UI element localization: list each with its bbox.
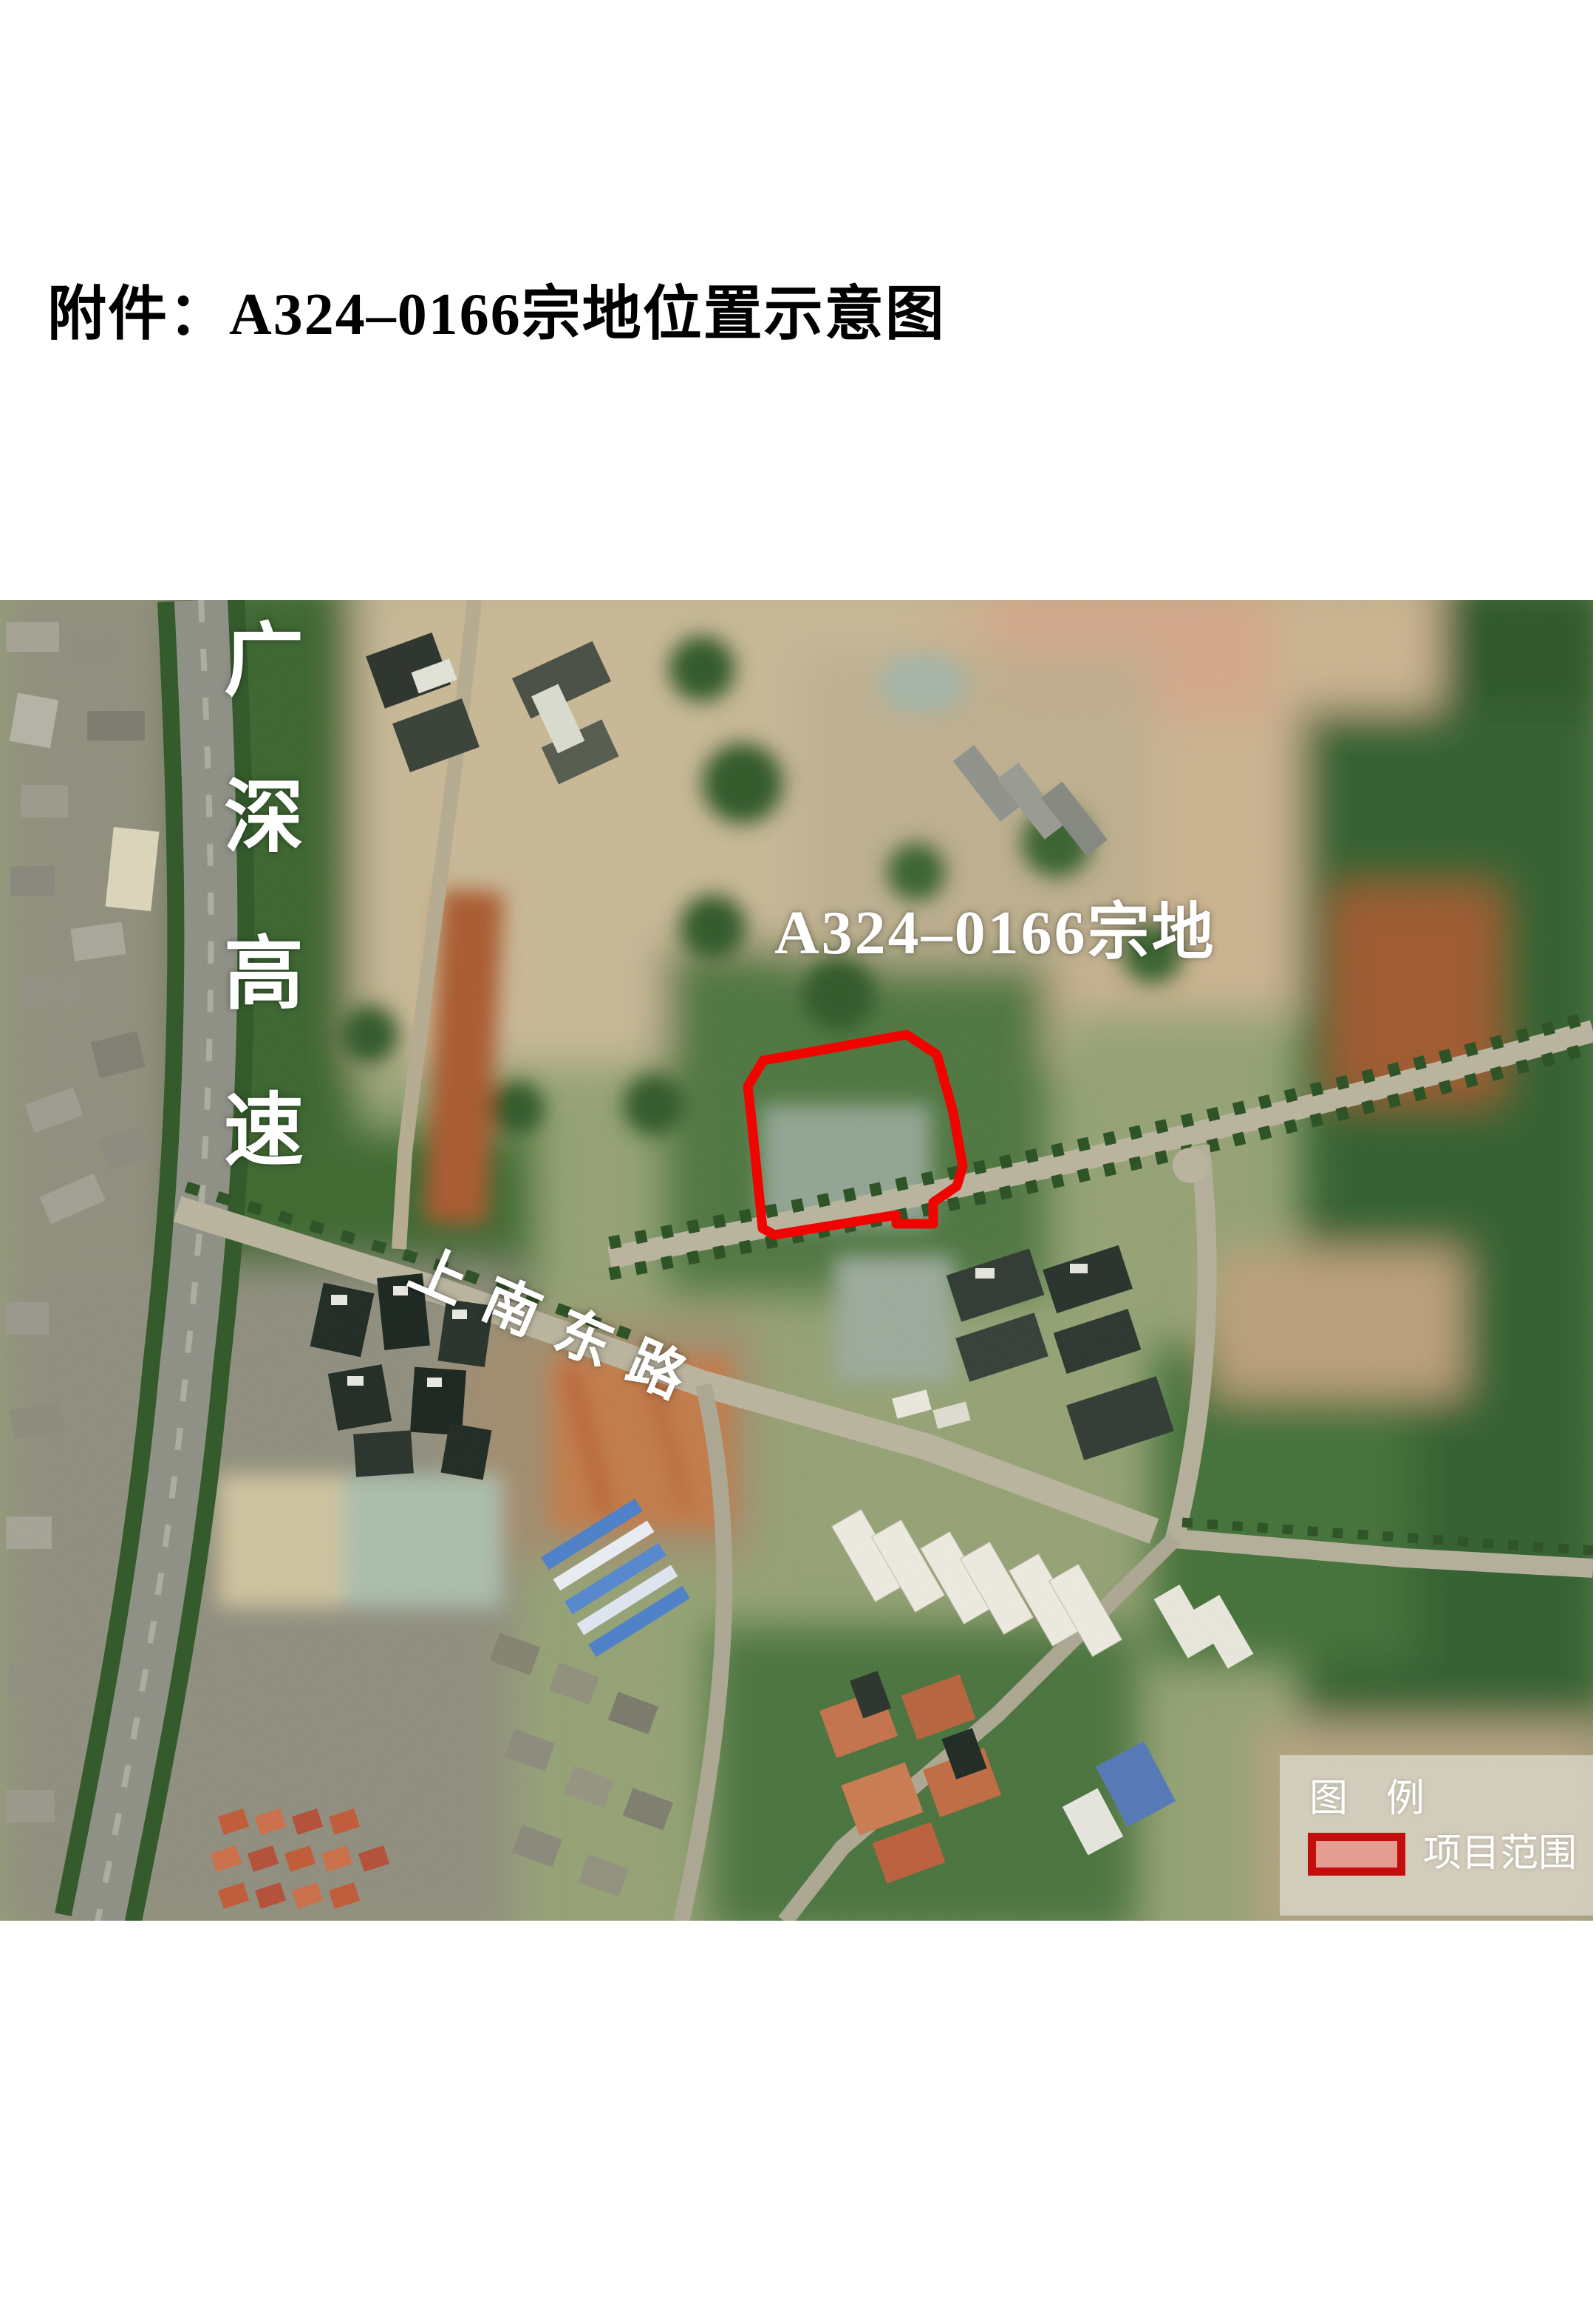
legend-swatch-project-boundary: [1308, 1833, 1405, 1876]
label-parcel: A324–0166宗地: [774, 882, 1216, 972]
satellite-map-figure: 广深高速 A324–0166宗地 上南东路 图 例 项目范围: [0, 600, 1593, 1921]
legend-item: 项目范围: [1308, 1832, 1577, 1876]
label-expressway: 广深高速: [216, 618, 296, 1245]
legend-item-label: 项目范围: [1423, 1832, 1577, 1876]
legend: 图 例 项目范围: [1280, 1755, 1593, 1916]
legend-title: 图 例: [1309, 1767, 1425, 1822]
page-title: 附件：A324–0166宗地位置示意图: [47, 266, 946, 352]
document-page: 附件：A324–0166宗地位置示意图: [0, 0, 1596, 2305]
